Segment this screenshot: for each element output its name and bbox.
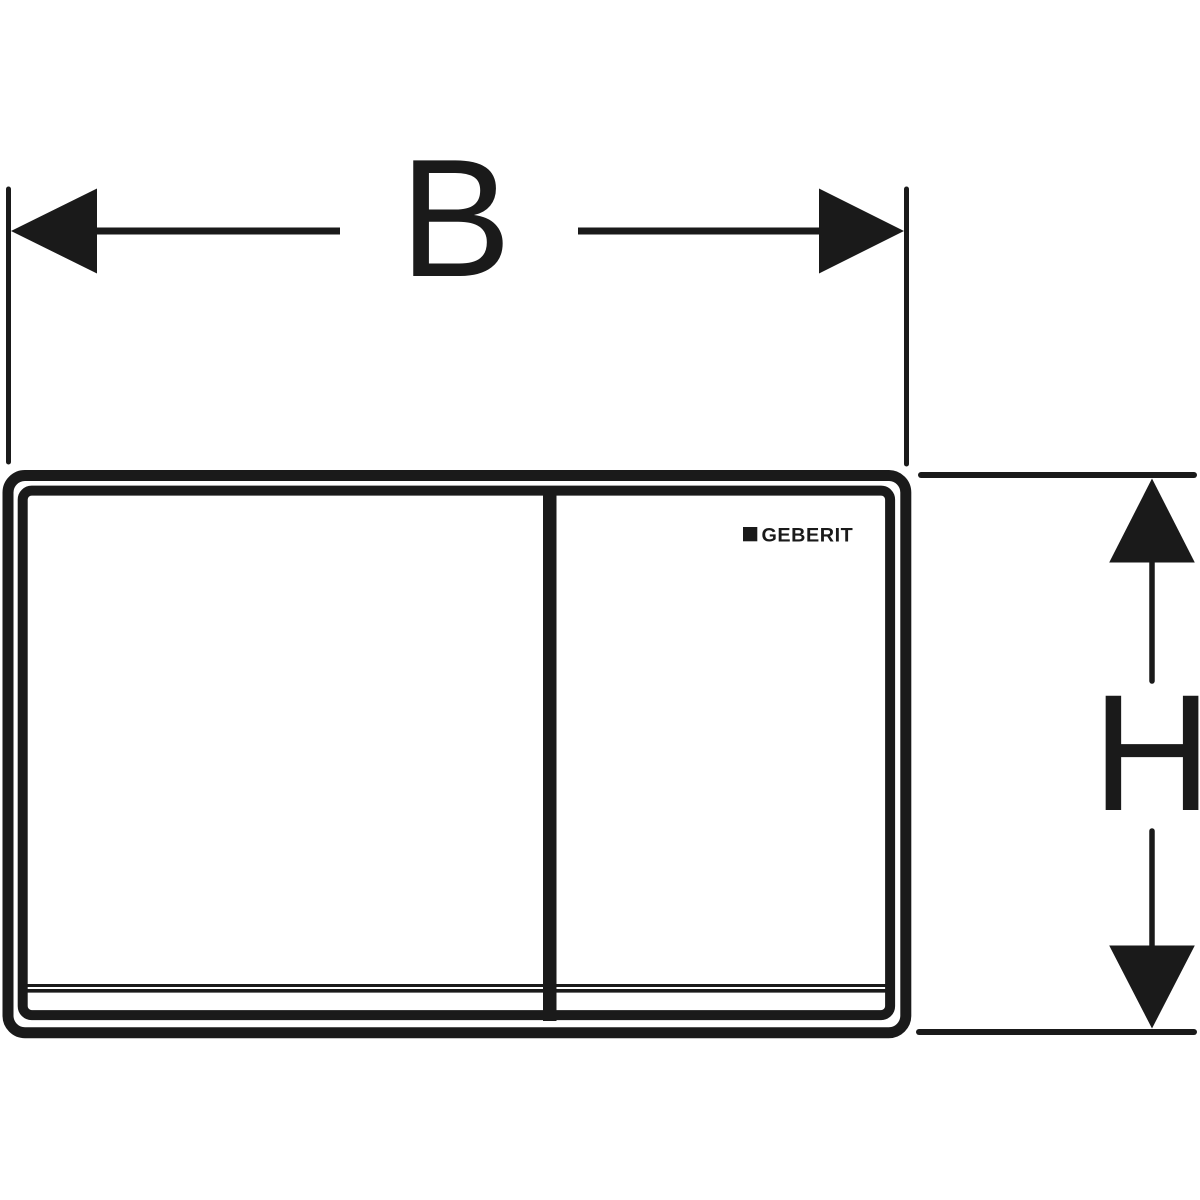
svg-text:B: B: [399, 124, 511, 312]
svg-text:H: H: [1092, 661, 1200, 846]
svg-text:GEBERIT: GEBERIT: [762, 525, 854, 547]
